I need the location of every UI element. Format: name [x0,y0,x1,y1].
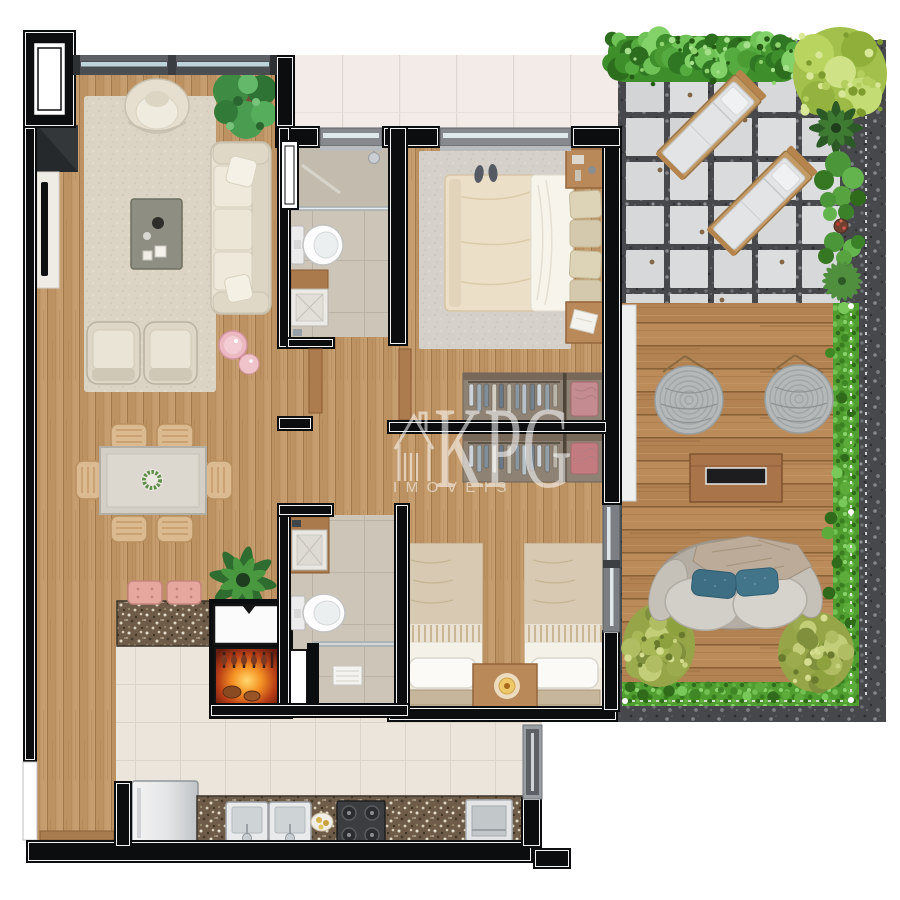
svg-text:IMOVEIS: IMOVEIS [393,479,515,496]
